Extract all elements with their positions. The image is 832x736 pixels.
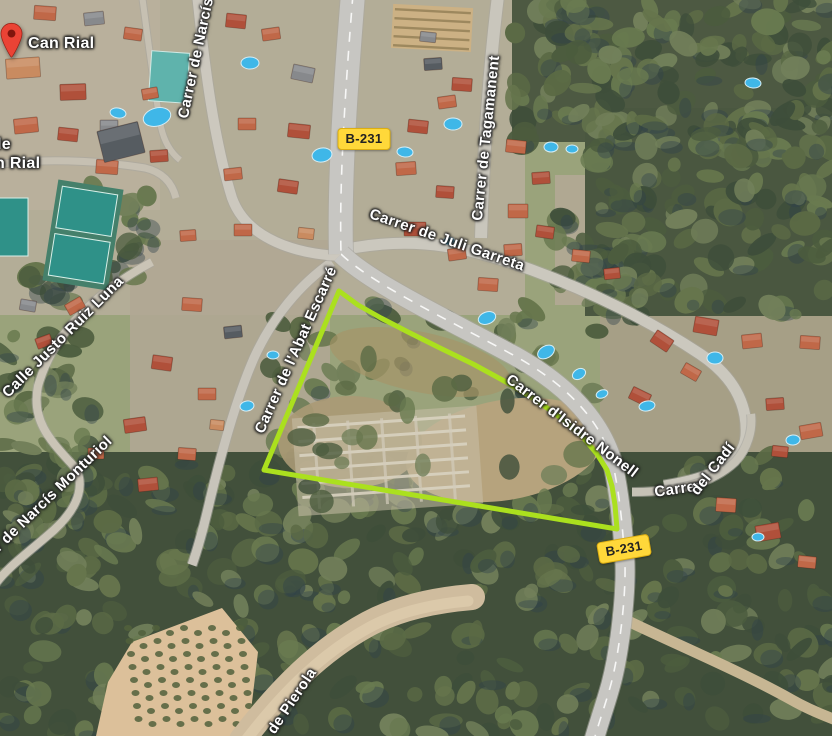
- plot-overlay-layer: [0, 0, 832, 736]
- pin-icon: [0, 22, 23, 58]
- map-pin-can-rial[interactable]: [0, 22, 23, 58]
- plot-boundary-polygon[interactable]: [264, 291, 617, 529]
- partial-place-label-line1: le: [0, 136, 11, 154]
- pin-place-label: Can Rial: [28, 35, 94, 53]
- partial-place-label-line2: n Rial: [0, 155, 40, 173]
- route-badge-b231-1: B-231: [338, 128, 391, 150]
- map-canvas[interactable]: Carrer de NarcísCarrer de TagamanentCarr…: [0, 0, 832, 736]
